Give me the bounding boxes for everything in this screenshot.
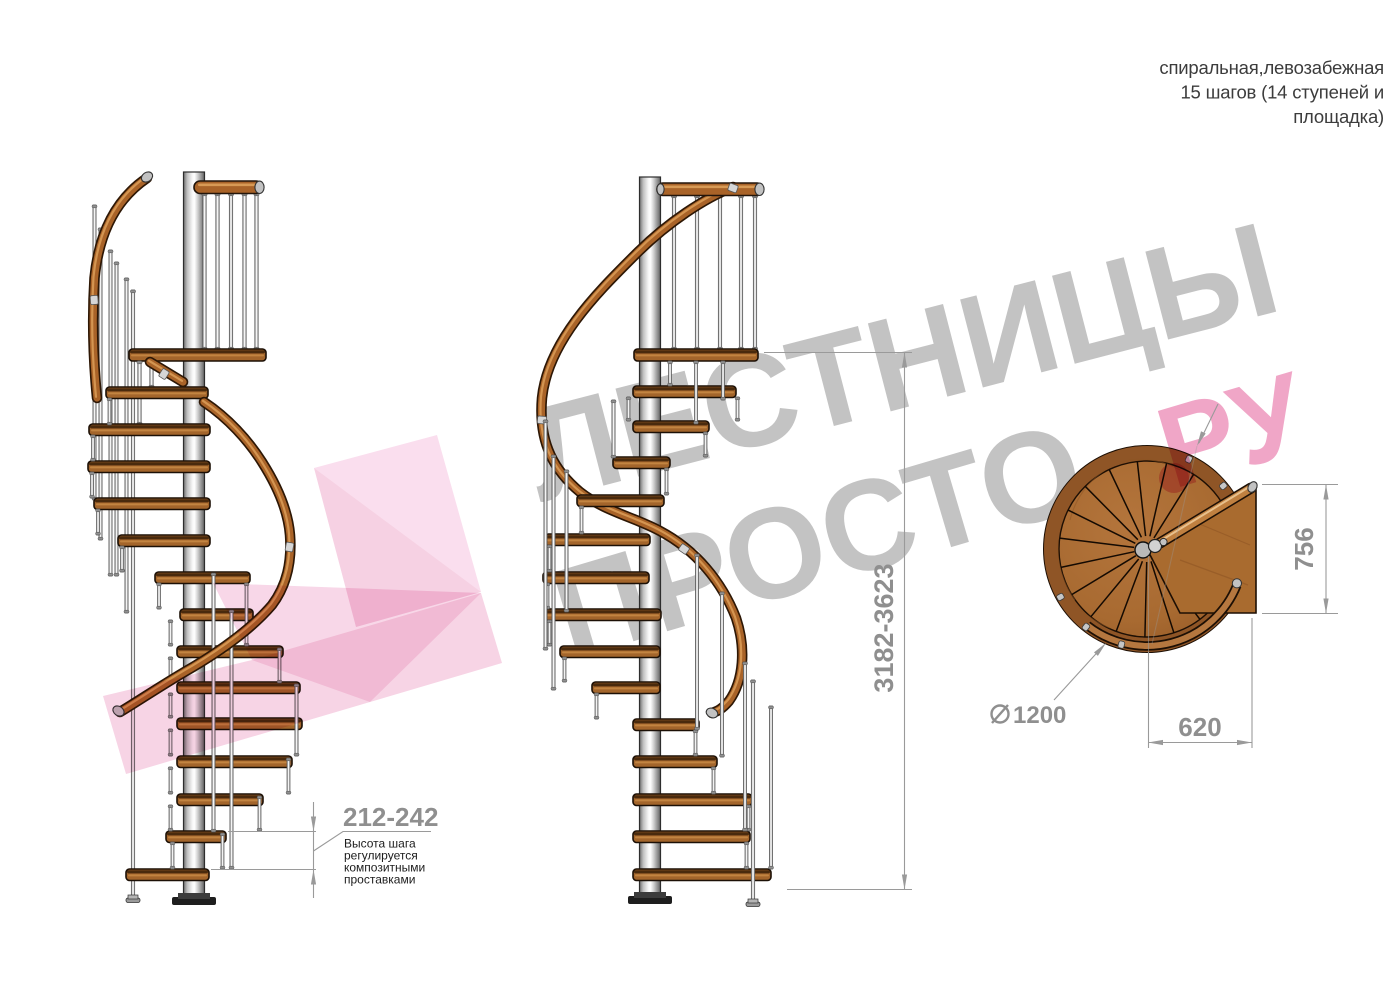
svg-text:620: 620 bbox=[1178, 712, 1221, 742]
svg-text:15 шагов (14 ступеней и: 15 шагов (14 ступеней и bbox=[1180, 82, 1384, 103]
svg-text:212-242: 212-242 bbox=[343, 802, 438, 832]
svg-text:спиральная,левозабежная: спиральная,левозабежная bbox=[1159, 57, 1384, 78]
svg-text:площадка): площадка) bbox=[1293, 106, 1384, 127]
svg-text:756: 756 bbox=[1289, 527, 1319, 570]
svg-text:проставками: проставками bbox=[344, 873, 415, 887]
svg-text:1200: 1200 bbox=[1013, 702, 1066, 729]
svg-text:3182-3623: 3182-3623 bbox=[869, 563, 899, 692]
